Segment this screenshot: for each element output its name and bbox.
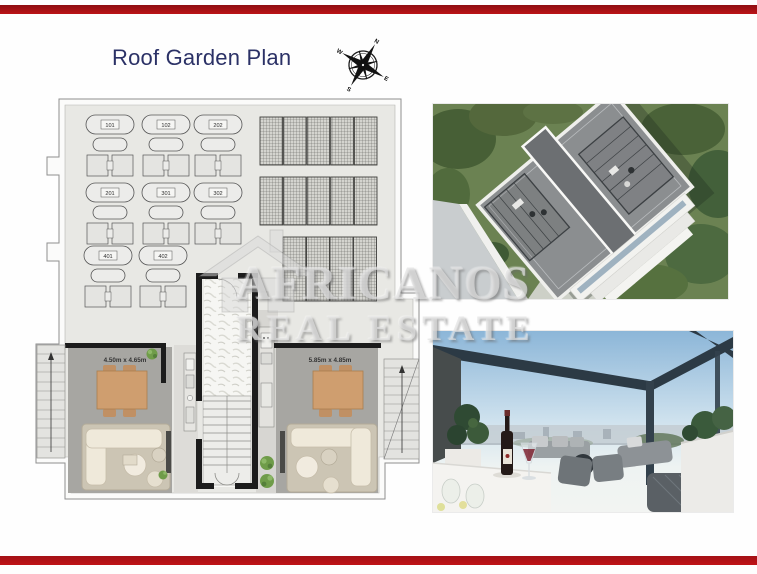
lounger-label: 202: [213, 123, 222, 129]
room-left-dimensions-label: 4.50m x 4.65m: [104, 357, 147, 364]
compass-w-label: W: [335, 48, 343, 56]
bottom-border-line: [0, 556, 757, 565]
lounger-unit: 302: [194, 183, 242, 244]
room-left: 4.50m x 4.65m: [65, 343, 172, 493]
lounger-unit: 401: [84, 246, 132, 307]
pergola-grid-top: [260, 117, 377, 165]
compass-n-label: N: [373, 38, 380, 45]
pergola-grid-lower: [283, 237, 377, 301]
staircase-core: [196, 273, 258, 489]
aerial-photo: [433, 104, 728, 299]
lounger-unit: 202: [194, 115, 242, 176]
plant-icon: [260, 474, 274, 488]
lounger-unit: 301: [142, 183, 190, 244]
lounger-label: 102: [161, 123, 170, 129]
page-root: Roof Garden Plan N E S W: [0, 0, 757, 574]
room-right: 5.85m x 4.85m: [274, 343, 381, 493]
lounger-unit: 101: [86, 115, 134, 176]
top-border-line: [0, 5, 757, 14]
plant-icon: [260, 456, 274, 470]
sofa-set: [82, 424, 170, 490]
lounger-unit: 201: [86, 183, 134, 244]
page-title: Roof Garden Plan: [112, 45, 291, 71]
tv-console: [280, 431, 285, 473]
room-right-dimensions-label: 5.85m x 4.85m: [309, 357, 352, 364]
plant-icon: [147, 349, 158, 360]
lounger-label: 101: [105, 123, 114, 129]
sofa-set: [287, 424, 377, 493]
lounger-label: 402: [158, 254, 167, 260]
tv-console: [166, 431, 171, 473]
external-stair-left: [37, 345, 65, 458]
compass-e-label: E: [383, 76, 389, 83]
floor-plan: 101 102 202: [35, 95, 420, 512]
lounger-label: 201: [105, 191, 114, 197]
compass-s-label: S: [345, 87, 351, 94]
terrace-photo: [433, 331, 733, 512]
dining-set: [313, 365, 363, 417]
lounger-unit: 402: [139, 246, 187, 307]
plant-icon: [159, 471, 168, 480]
kitchenette-right: [259, 327, 274, 427]
lounger-label: 401: [103, 254, 112, 260]
lounger-unit: 102: [142, 115, 190, 176]
dining-set: [97, 365, 147, 417]
pergola-grid-middle: [260, 177, 377, 225]
lounger-label: 302: [213, 191, 222, 197]
external-stair-right: [384, 359, 419, 459]
lounger-label: 301: [161, 191, 170, 197]
compass-icon: N E S W: [334, 34, 392, 96]
kitchenette-left: [184, 353, 196, 431]
